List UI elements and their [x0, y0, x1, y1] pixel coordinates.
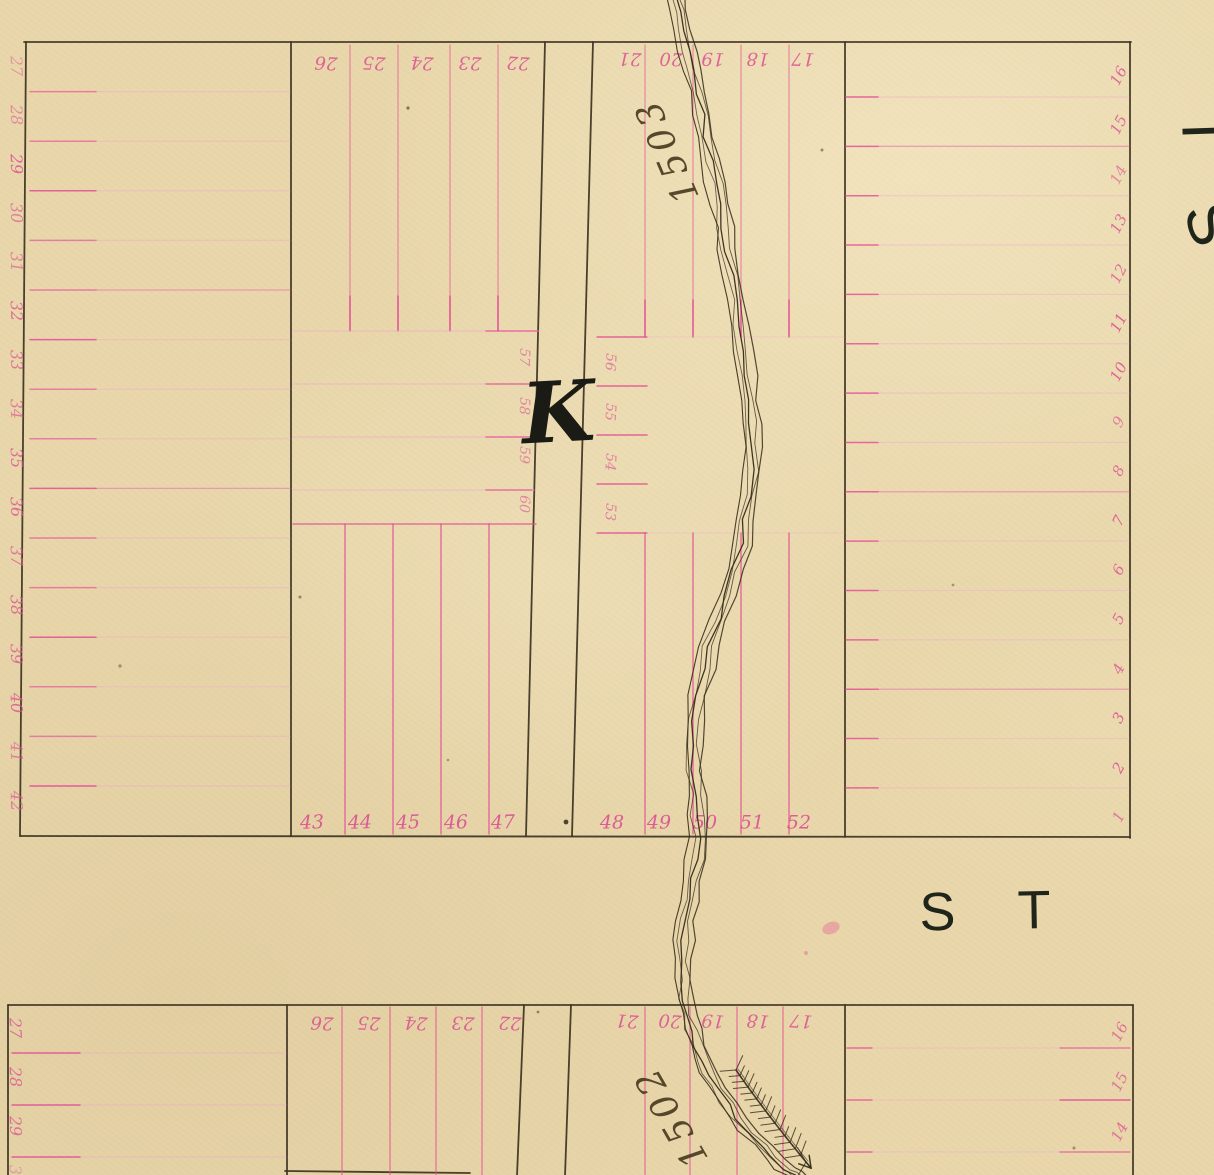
lot-number: 20 — [659, 49, 683, 68]
lot-number: 17 — [789, 1010, 813, 1030]
lot-number: 38 — [8, 595, 25, 616]
lot-number: 45 — [396, 813, 421, 833]
lot-number: 48 — [600, 814, 624, 833]
lot-number: 8 — [1110, 463, 1128, 478]
lot-number: 12 — [1108, 262, 1130, 286]
lot-number: 50 — [693, 814, 717, 833]
lot-number: 4 — [1110, 661, 1128, 676]
lot-number: 15 — [1108, 113, 1130, 137]
lot-number: 21 — [618, 49, 642, 68]
lot-number: 57 — [517, 348, 532, 366]
lot-number: 42 — [8, 791, 25, 812]
lot-number: 6 — [1110, 562, 1128, 577]
lot-number: 23 — [458, 52, 482, 71]
plat-map: K S T T S 1503 1502 27282930313233343536… — [0, 0, 1214, 1175]
lot-number: 53 — [602, 503, 617, 522]
lot-number: 16 — [1108, 64, 1130, 88]
lot-number: 29 — [7, 1116, 24, 1137]
lot-number: 9 — [1110, 414, 1128, 429]
lot-number: 40 — [8, 693, 25, 714]
lot-number: 17 — [791, 49, 815, 68]
side-street-letter-s: S — [1169, 193, 1214, 254]
lot-number: 43 — [300, 813, 325, 833]
lot-number: 3 — [1110, 710, 1128, 725]
lot-number: 30 — [8, 203, 25, 224]
lot-number: 44 — [348, 813, 373, 833]
lot-number: 54 — [602, 453, 617, 472]
lot-number: 56 — [602, 353, 617, 372]
lot-number: 26 — [314, 52, 338, 71]
lot-number: 25 — [357, 1012, 381, 1031]
lot-number: 5 — [1110, 612, 1128, 627]
lot-number: 20 — [658, 1010, 682, 1030]
lot-number: 2 — [1110, 760, 1128, 775]
street-label-st: S T — [919, 879, 1075, 944]
lot-number: 55 — [602, 403, 617, 422]
lot-number: 58 — [517, 397, 532, 415]
lot-number: 22 — [498, 1012, 522, 1031]
lot-number: 52 — [787, 814, 811, 833]
lot-number: 32 — [8, 301, 25, 322]
lot-number: 47 — [491, 813, 516, 833]
lot-number: 46 — [444, 813, 469, 833]
lot-number: 23 — [451, 1012, 475, 1031]
lot-number: 14 — [1109, 1120, 1131, 1144]
lot-number: 14 — [1108, 163, 1130, 187]
lot-number: 26 — [310, 1012, 334, 1031]
lot-number: 25 — [362, 52, 386, 71]
lot-number: 11 — [1108, 311, 1130, 335]
lot-number: 16 — [1109, 1020, 1131, 1044]
lot-number: 28 — [7, 1067, 24, 1088]
lot-number: 31 — [8, 252, 25, 273]
lot-number: 19 — [701, 1010, 725, 1030]
lot-number: 34 — [8, 399, 25, 420]
lot-number: 60 — [517, 495, 532, 513]
lot-number: 22 — [506, 52, 530, 71]
lot-number: 7 — [1110, 513, 1128, 528]
lot-number: 36 — [8, 497, 25, 518]
lot-number: 24 — [404, 1012, 428, 1031]
survey-number-upper: 1503 — [626, 91, 707, 210]
lot-number: 33 — [8, 350, 25, 371]
lot-number: 39 — [8, 644, 25, 665]
side-street-letter-t: T — [1167, 111, 1214, 151]
lot-number: 49 — [647, 814, 671, 833]
lot-number: 37 — [8, 546, 25, 567]
lot-number: 15 — [1109, 1070, 1131, 1094]
lot-number: 59 — [517, 446, 532, 464]
lot-number: 30 — [7, 1165, 24, 1175]
lot-number: 29 — [8, 154, 25, 175]
lot-number: 35 — [8, 448, 25, 469]
survey-number-lower: 1502 — [625, 1057, 716, 1174]
lot-number: 19 — [701, 49, 725, 68]
lot-number: 13 — [1108, 212, 1130, 236]
lot-number: 28 — [8, 105, 25, 126]
lot-number: 1 — [1110, 809, 1128, 824]
lot-number: 41 — [8, 742, 25, 763]
lot-number: 21 — [615, 1010, 639, 1030]
lot-number: 51 — [740, 814, 764, 833]
map-labels: K S T T S 1503 1502 27282930313233343536… — [0, 0, 1214, 1175]
lot-number: 27 — [8, 56, 25, 77]
lot-number: 10 — [1108, 360, 1130, 384]
lot-number: 27 — [7, 1018, 24, 1039]
lot-number: 24 — [410, 52, 434, 71]
lot-number: 18 — [746, 1010, 770, 1030]
lot-number: 18 — [746, 49, 770, 68]
